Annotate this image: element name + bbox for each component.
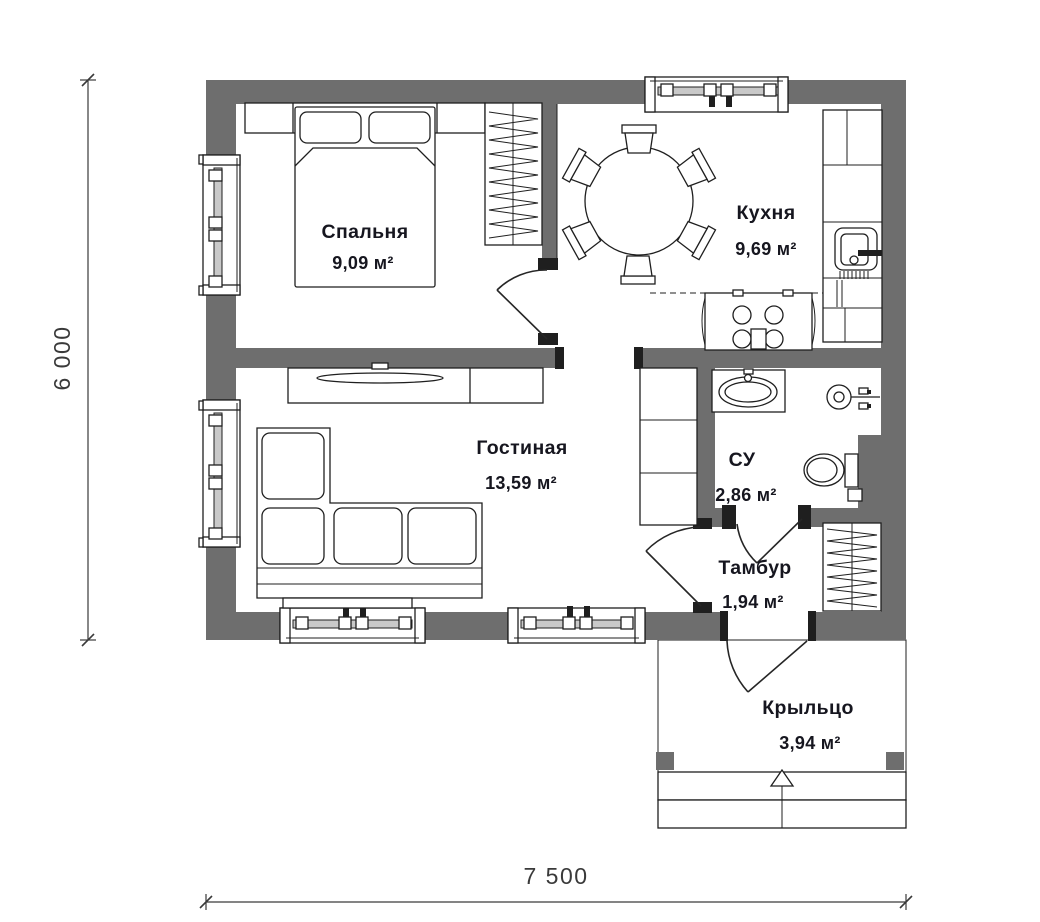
wall-bottom-right [812,612,906,640]
room-label-living: Гостиная [476,437,567,459]
room-label-bedroom: Спальня [321,221,408,243]
porch-post-right [886,752,904,770]
window-bedroom [199,155,240,295]
stove [650,290,823,350]
room-area-tambour: 1,94 м² [722,592,783,612]
window-living-left [199,400,240,547]
room-area-bath: 2,86 м² [715,485,776,505]
dimension-width-label: 7 500 [523,863,588,889]
toilet [804,454,862,501]
room-label-porch: Крыльцо [762,697,854,719]
window-kitchen [645,77,788,112]
kitchen-sink [835,228,882,270]
wall-top [206,80,906,104]
window-living-bottom-1 [280,606,425,643]
door-tambour-living [646,527,701,606]
kitchen-counter [823,110,882,342]
door-entry [727,641,807,692]
porch-post-left [656,752,674,770]
sofa-rug [283,598,412,608]
floor-plan-drawing: 6 000 7 500 Спальня 9,09 м² Кухня 9,69 м… [0,0,1040,922]
room-area-kitchen: 9,69 м² [735,239,796,259]
cabinet-living [640,368,697,525]
room-area-porch: 3,94 м² [779,733,840,753]
room-label-tambour: Тамбур [718,557,791,579]
dining-table [585,147,693,255]
wall-right [881,80,906,640]
wall-kitchen-bath [635,348,881,368]
dimension-horizontal: 7 500 [200,863,912,910]
room-label-bath: СУ [729,449,756,471]
room-area-bedroom: 9,09 м² [332,253,393,273]
wall-bedroom-living [236,348,563,368]
window-living-bottom-2 [508,606,645,643]
room-area-living: 13,59 м² [485,473,557,493]
wall-bedroom-kitchen [542,104,557,264]
wardrobe-tambour [823,523,881,611]
dimension-height-label: 6 000 [49,325,75,390]
shower [827,385,880,409]
wardrobe-bedroom [485,103,542,245]
door-bedroom [497,270,547,339]
room-label-kitchen: Кухня [737,202,796,224]
bathroom-sink [712,369,785,412]
floor-plan-page: 6 000 7 500 Спальня 9,09 м² Кухня 9,69 м… [0,0,1040,922]
dimension-vertical: 6 000 [49,74,96,646]
sofa [257,428,482,598]
